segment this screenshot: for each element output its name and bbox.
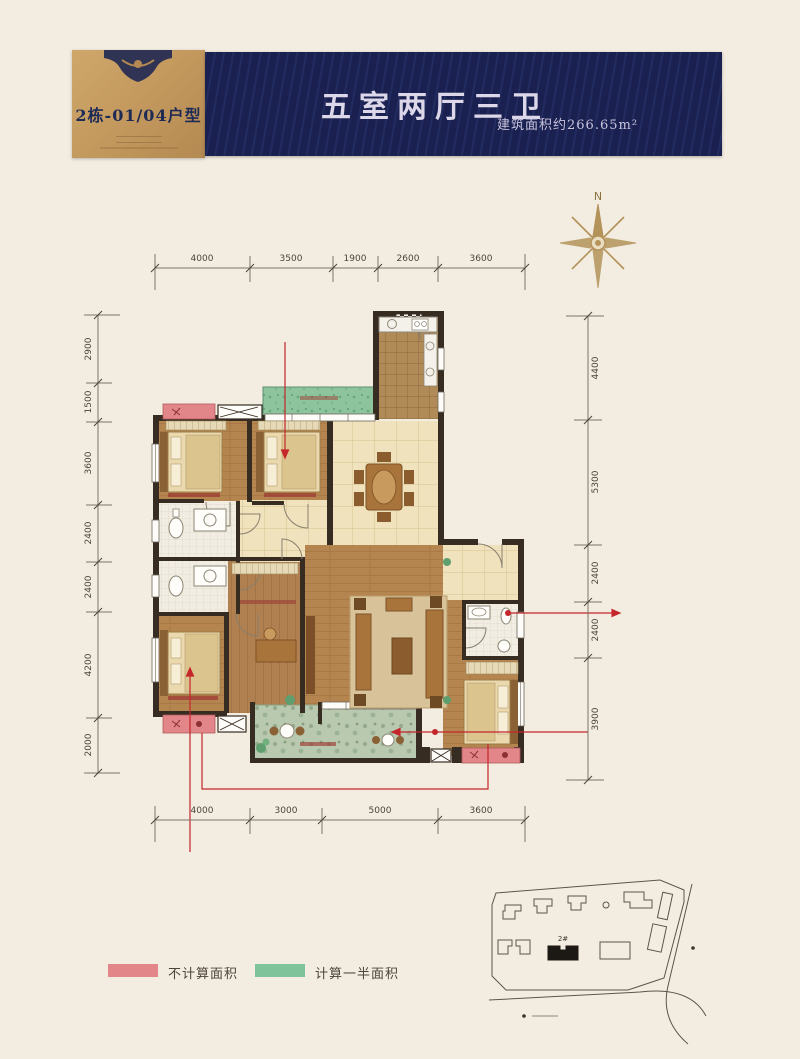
wall: [420, 747, 430, 763]
dim-bottom-1: 4000: [191, 806, 214, 816]
site-building-highlight: [548, 946, 578, 960]
side-table: [430, 596, 442, 608]
master-toilet: [501, 608, 511, 624]
wall: [318, 702, 322, 724]
sofa-left: [356, 614, 371, 690]
wardrobe: [166, 421, 226, 430]
dim-bottom-4: 3600: [470, 806, 493, 816]
dim-left-2: 1500: [84, 390, 94, 413]
site-building: [534, 899, 552, 913]
dim-left-1: 2900: [84, 337, 94, 360]
bed-size-label: [264, 493, 316, 497]
dim-right-4: 2400: [591, 618, 601, 641]
site-highlight-label: 2#: [558, 935, 568, 943]
top-balcony-green: [263, 387, 378, 417]
dim-bottom-2: 3000: [275, 806, 298, 816]
ac-dot: [502, 752, 508, 758]
ac-panel-bottom-left: [163, 715, 215, 733]
site-map: 2#: [489, 880, 706, 1044]
wall: [252, 501, 284, 505]
sofa-right: [426, 610, 443, 698]
dim-left-4: 2400: [84, 521, 94, 544]
dim-right-1: 4400: [591, 356, 601, 379]
red-dot: [505, 610, 511, 616]
bed-headboard: [160, 630, 168, 696]
site-marker-dot: [691, 946, 695, 950]
site-building: [600, 942, 630, 959]
site-building: [568, 896, 586, 910]
wall: [327, 415, 333, 545]
balcony-label: [300, 742, 336, 746]
red-arrow-right: [612, 610, 620, 617]
ac-dot: [196, 721, 202, 727]
ac-panel-bottom-right: [462, 748, 520, 763]
toilet-tank: [173, 509, 179, 517]
plant: [285, 695, 295, 705]
site-feature: [603, 902, 609, 908]
wall: [300, 557, 305, 713]
dim-right-3: 2400: [591, 561, 601, 584]
sink-counter: [194, 509, 226, 531]
bed-size-label: [168, 493, 220, 497]
compass-north-label: N: [594, 190, 602, 203]
study-cabinet: [232, 563, 298, 574]
window: [438, 348, 444, 370]
master-wardrobe: [466, 662, 518, 674]
dim-top-2: 3500: [280, 254, 303, 264]
plant: [443, 696, 451, 704]
chair: [377, 452, 391, 462]
dim-top-4: 2600: [397, 254, 420, 264]
site-road: [489, 991, 706, 1016]
bowtie-window: [218, 405, 262, 419]
chair: [377, 512, 391, 522]
balcony-table: [280, 724, 294, 738]
master-hall-floor: [443, 545, 520, 601]
wall: [224, 612, 229, 713]
toilet: [169, 518, 183, 538]
site-building: [657, 892, 672, 920]
balcony-table: [382, 734, 394, 746]
side-table: [430, 696, 442, 708]
bowtie-window: [218, 716, 246, 732]
window: [517, 612, 524, 638]
window: [438, 392, 444, 412]
balcony-label: [300, 396, 338, 400]
site-building: [498, 940, 530, 954]
wall: [247, 418, 252, 502]
pillow: [171, 638, 181, 658]
pillow: [498, 712, 508, 734]
wall: [373, 311, 379, 386]
side-table: [354, 598, 366, 610]
window: [152, 575, 159, 597]
bowtie-window: [431, 749, 451, 762]
desk-chair: [264, 628, 276, 640]
tv-cabinet: [306, 616, 315, 694]
coffee-table: [392, 638, 412, 674]
chair: [404, 470, 414, 484]
wall: [462, 600, 520, 604]
dim-left-7: 2000: [84, 733, 94, 756]
wardrobe: [258, 421, 320, 430]
dim-right-2: 5300: [591, 470, 601, 493]
window: [152, 520, 159, 542]
chair: [404, 492, 414, 506]
armchair: [386, 598, 412, 611]
wall: [438, 420, 444, 545]
site-building: [647, 924, 666, 952]
wall: [518, 539, 524, 763]
quilt: [282, 435, 316, 489]
pillow: [171, 664, 181, 684]
dim-top-1: 4000: [191, 254, 214, 264]
balcony-stool: [372, 736, 380, 744]
wall: [462, 656, 520, 660]
side-table: [354, 694, 366, 706]
bed-size-label: [168, 696, 218, 700]
balcony-stool: [296, 727, 305, 736]
pillow: [171, 464, 181, 486]
floor-plan-canvas: 4000 3500 1900 2600 3600 4000 3000 5000 …: [0, 0, 800, 1059]
wall: [452, 747, 462, 763]
pillow: [498, 686, 508, 708]
plant: [263, 739, 270, 746]
wall: [250, 758, 422, 763]
balcony-stool: [396, 736, 404, 744]
ac-panel-top-left: [163, 404, 215, 419]
site-boundary: [492, 880, 684, 990]
wall: [438, 539, 478, 545]
sink-counter: [194, 566, 226, 586]
dim-left-6: 4200: [84, 653, 94, 676]
dim-bottom-3: 5000: [369, 806, 392, 816]
toilet: [169, 576, 183, 596]
wall: [158, 499, 204, 503]
pillow: [267, 437, 277, 459]
quilt: [186, 435, 220, 489]
wall: [155, 612, 228, 616]
pillow: [267, 464, 277, 486]
balcony-stool: [270, 727, 279, 736]
site-marker-dot: [522, 1014, 526, 1018]
red-dot: [432, 729, 438, 735]
pillow: [171, 437, 181, 459]
master-washer: [498, 640, 510, 652]
compass-rose: N: [560, 190, 636, 288]
chair: [354, 470, 364, 484]
chair: [354, 492, 364, 506]
dim-top-3: 1900: [344, 254, 367, 264]
bed-headboard: [256, 432, 264, 492]
dining-table-top: [372, 470, 396, 504]
study-label: [240, 600, 296, 604]
wall: [228, 557, 304, 561]
dim-left-5: 2400: [84, 575, 94, 598]
desk: [256, 640, 296, 662]
dim-left-3: 3600: [84, 451, 94, 474]
wall: [250, 702, 255, 763]
compass-star-icon: [560, 204, 636, 288]
dim-top-5: 3600: [470, 254, 493, 264]
wall: [155, 557, 238, 561]
site-building: [624, 892, 652, 908]
site-building: [503, 905, 521, 919]
wall: [462, 600, 466, 658]
bed-headboard: [160, 432, 168, 492]
plant: [443, 558, 451, 566]
bed-headboard: [510, 680, 518, 744]
dim-right-5: 3900: [591, 707, 601, 730]
